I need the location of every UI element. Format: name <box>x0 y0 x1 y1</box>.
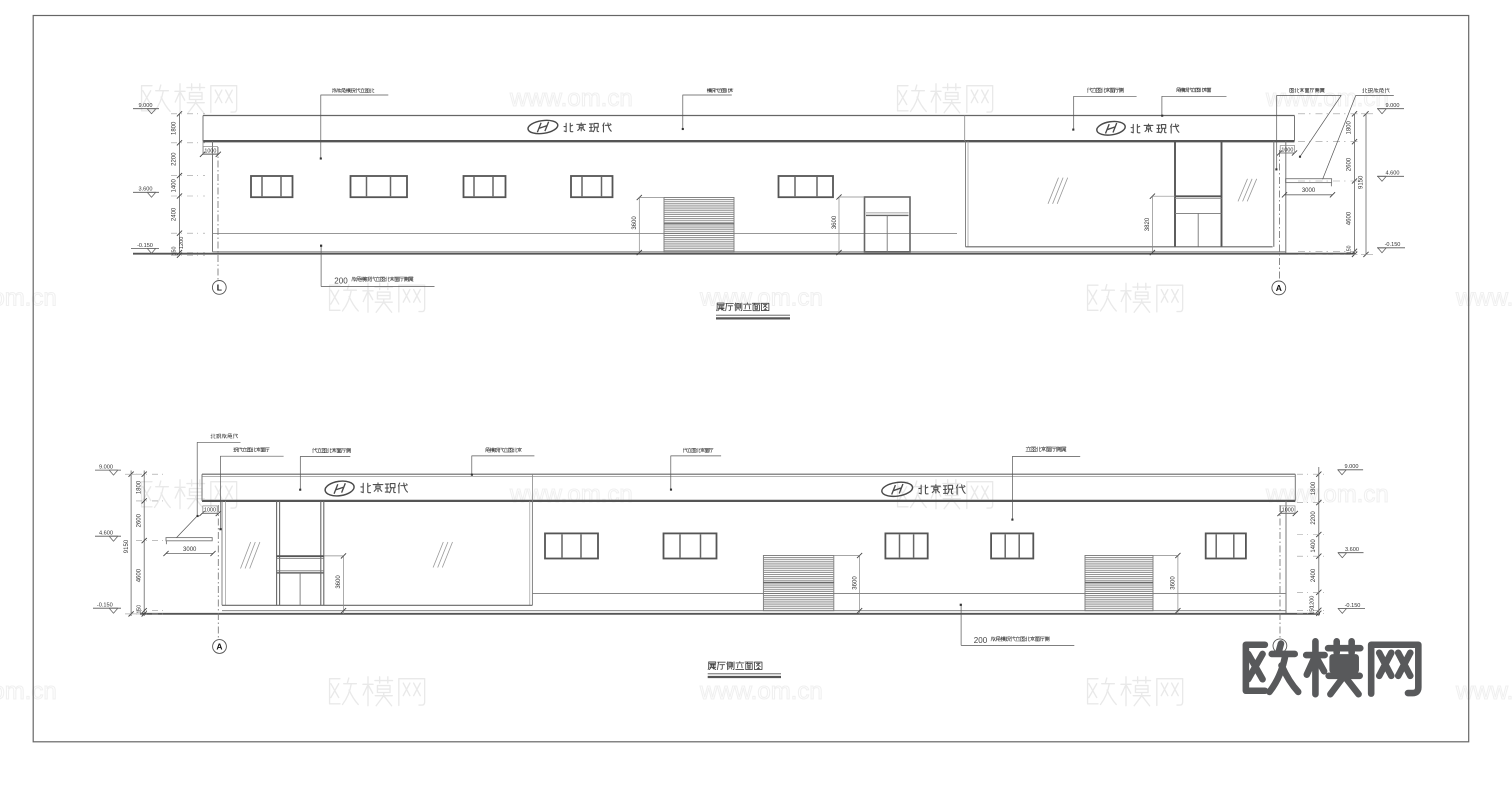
svg-text:4600: 4600 <box>136 568 142 582</box>
svg-text:4600: 4600 <box>1347 211 1353 225</box>
svg-text:200: 200 <box>334 276 348 285</box>
svg-text:9.000: 9.000 <box>99 465 113 471</box>
svg-text:1000: 1000 <box>1281 147 1293 153</box>
svg-text:3600: 3600 <box>336 575 342 589</box>
svg-text:www.om.cn: www.om.cn <box>0 678 57 705</box>
svg-text:www.om.cn: www.om.cn <box>1455 678 1512 705</box>
svg-text:3600: 3600 <box>1171 576 1177 590</box>
svg-text:1400: 1400 <box>1311 539 1317 553</box>
svg-text:2200: 2200 <box>1311 511 1317 525</box>
svg-text:www.om.cn: www.om.cn <box>1265 481 1389 508</box>
svg-text:1800: 1800 <box>1311 481 1317 495</box>
svg-text:L: L <box>217 283 222 293</box>
svg-text:www.om.cn: www.om.cn <box>0 285 57 312</box>
svg-text:9.000: 9.000 <box>1386 103 1400 109</box>
svg-text:150: 150 <box>1310 606 1316 615</box>
svg-text:1000: 1000 <box>1282 508 1294 514</box>
svg-text:9150: 9150 <box>1358 175 1364 189</box>
svg-text:www.om.cn: www.om.cn <box>509 85 633 112</box>
svg-text:150: 150 <box>1347 245 1353 254</box>
svg-text:-0.150: -0.150 <box>1345 603 1361 609</box>
svg-text:1400: 1400 <box>171 178 177 192</box>
svg-text:1000: 1000 <box>204 148 216 154</box>
svg-text:3600: 3600 <box>832 215 838 229</box>
svg-text:9.000: 9.000 <box>1345 464 1359 470</box>
svg-text:A: A <box>216 642 222 652</box>
svg-text:A: A <box>1276 283 1282 293</box>
svg-text:www.om.cn: www.om.cn <box>509 481 633 508</box>
svg-text:3600: 3600 <box>632 216 638 230</box>
svg-text:4.600: 4.600 <box>1386 171 1400 177</box>
svg-text:www.om.cn: www.om.cn <box>699 678 823 705</box>
svg-text:150: 150 <box>136 605 142 614</box>
svg-text:2400: 2400 <box>1311 568 1317 582</box>
svg-text:150: 150 <box>171 247 177 256</box>
svg-text:3820: 3820 <box>1145 217 1151 231</box>
svg-text:3.600: 3.600 <box>139 187 153 193</box>
svg-text:2600: 2600 <box>136 513 142 527</box>
svg-text:3600: 3600 <box>852 576 858 590</box>
svg-text:3000: 3000 <box>183 547 197 553</box>
svg-text:-0.150: -0.150 <box>137 243 153 249</box>
svg-text:1000: 1000 <box>204 508 216 514</box>
svg-text:www.om.cn: www.om.cn <box>1455 285 1512 312</box>
svg-text:3000: 3000 <box>1302 188 1316 194</box>
svg-text:2400: 2400 <box>171 207 177 221</box>
svg-text:2600: 2600 <box>1347 157 1353 171</box>
svg-text:9150: 9150 <box>124 539 130 553</box>
svg-text:-0.150: -0.150 <box>97 603 113 609</box>
svg-text:-0.150: -0.150 <box>1385 242 1401 248</box>
svg-text:1800: 1800 <box>1347 120 1353 134</box>
svg-text:2200: 2200 <box>171 152 177 166</box>
svg-text:200: 200 <box>974 636 988 645</box>
svg-text:9.000: 9.000 <box>139 103 153 109</box>
svg-text:1200: 1200 <box>179 237 185 249</box>
svg-text:1800: 1800 <box>171 121 177 135</box>
svg-text:1800: 1800 <box>136 480 142 494</box>
svg-text:4.600: 4.600 <box>99 531 113 537</box>
svg-text:3.600: 3.600 <box>1345 547 1359 553</box>
